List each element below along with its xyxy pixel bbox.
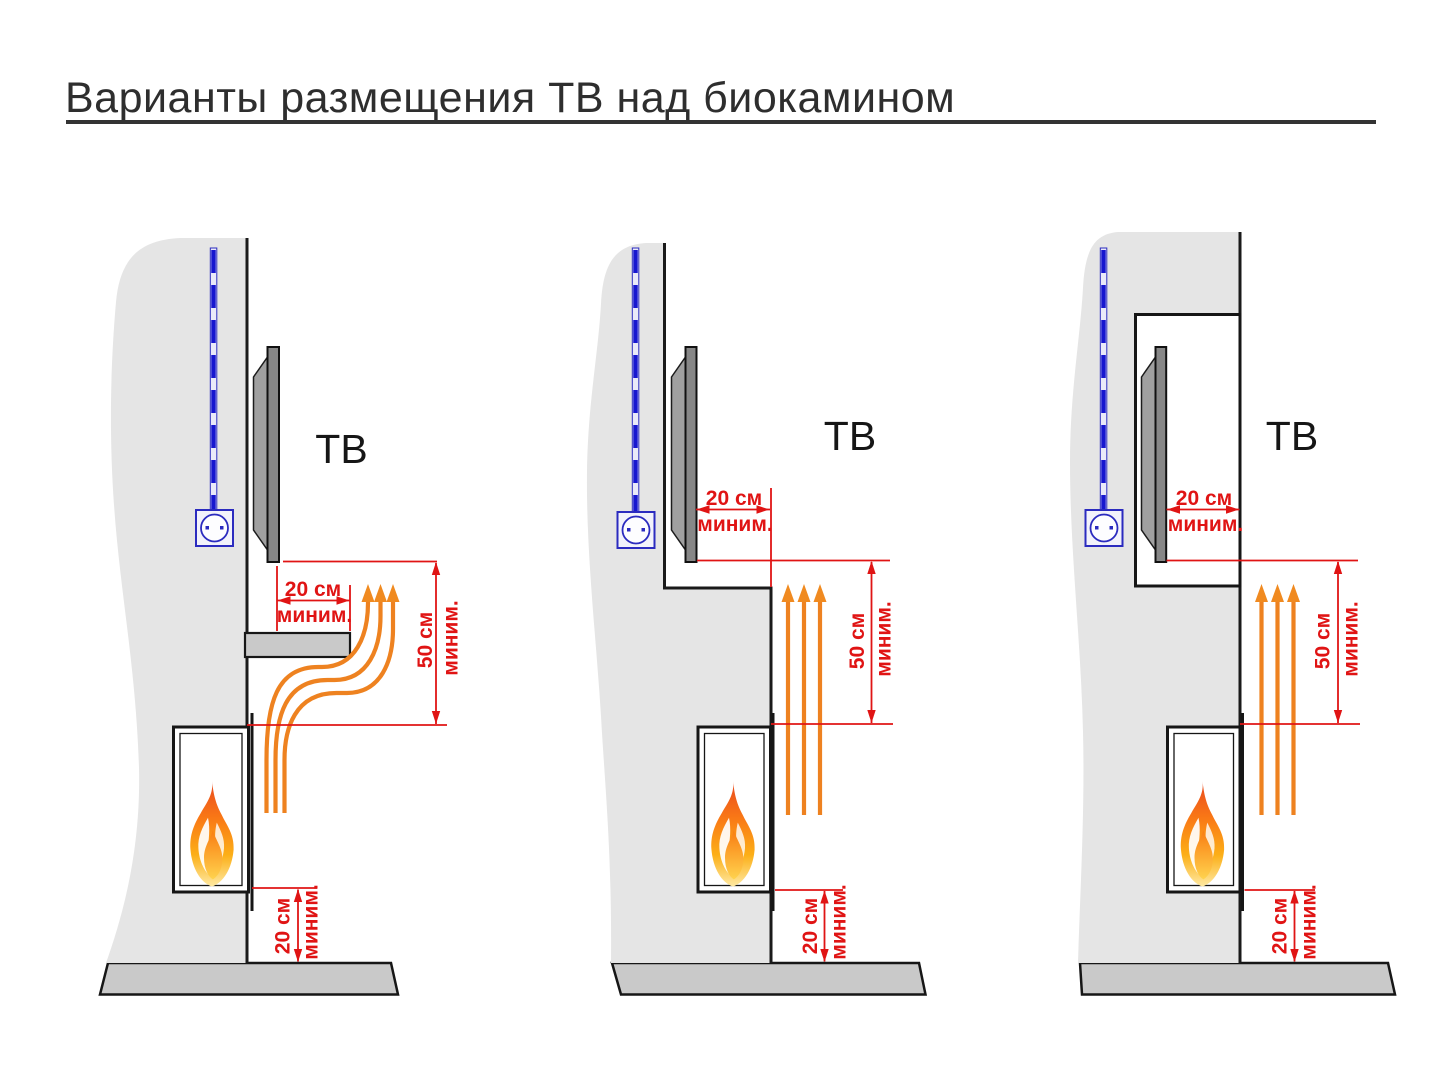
tv-body xyxy=(686,347,697,562)
fireplace xyxy=(1168,713,1243,911)
tv-screen xyxy=(254,357,268,550)
tv-label: ТВ xyxy=(1266,413,1318,459)
dim-arrowhead xyxy=(867,710,875,723)
above-clearance-qualifier: миним. xyxy=(873,601,896,676)
floor-clearance-dimension: 20 см миним. xyxy=(1245,884,1321,962)
tv-label: ТВ xyxy=(315,426,367,472)
tv-screen xyxy=(1142,357,1156,550)
floor-clearance-value: 20 см xyxy=(1269,898,1292,954)
front-clearance-value: 20 см xyxy=(1176,487,1232,510)
tv-panel xyxy=(1142,347,1167,562)
tv-body xyxy=(1156,347,1167,562)
tv-panel xyxy=(672,347,697,562)
above-clearance-value: 50 см xyxy=(846,613,869,669)
floor-clearance-qualifier: миним. xyxy=(1298,884,1321,959)
socket-pin xyxy=(627,528,631,532)
socket-pin xyxy=(1110,526,1114,530)
floor xyxy=(100,963,398,995)
heat-arrows xyxy=(1255,584,1300,815)
heat-arrowhead xyxy=(814,584,827,602)
diagram-1: ТВ 20 см миним. xyxy=(100,238,463,995)
front-clearance-qualifier: миним. xyxy=(697,513,772,536)
tv-screen xyxy=(672,357,686,550)
placement-diagrams: ТВ 20 см миним. xyxy=(0,0,1440,1080)
above-clearance-value: 50 см xyxy=(1312,613,1335,669)
front-clearance-dimension: 20 см миним. xyxy=(696,487,773,587)
floor xyxy=(1080,963,1395,995)
front-clearance-dimension: 20 см миним. xyxy=(277,566,352,631)
tv-body xyxy=(268,347,280,562)
socket-circle xyxy=(201,515,228,542)
heat-arrowhead xyxy=(782,584,795,602)
socket-pin xyxy=(206,526,210,530)
floor-clearance-qualifier: миним. xyxy=(300,884,323,959)
front-clearance-value: 20 см xyxy=(285,578,341,601)
heat-arrowhead xyxy=(374,584,387,602)
heat-arrowhead xyxy=(1271,584,1284,602)
diagram-page: Варианты размещения ТВ над биокамином xyxy=(0,0,1440,1080)
heat-arrowhead xyxy=(798,584,811,602)
floor-clearance-dimension: 20 см миним. xyxy=(252,884,323,962)
diagram-2: ТВ 20 см миним. xyxy=(587,243,926,995)
socket-circle xyxy=(623,517,650,544)
floor-clearance-qualifier: миним. xyxy=(828,884,851,959)
socket-pin xyxy=(220,526,224,530)
above-clearance-qualifier: миним. xyxy=(440,600,463,675)
floor-clearance-dimension: 20 см миним. xyxy=(775,884,851,962)
front-clearance-qualifier: миним. xyxy=(277,604,352,627)
socket-pin xyxy=(1095,526,1099,530)
dim-arrowhead xyxy=(867,561,875,574)
tv-label: ТВ xyxy=(824,413,876,459)
tv-panel xyxy=(254,347,280,562)
heat-arrowhead xyxy=(1287,584,1300,602)
floor-clearance-value: 20 см xyxy=(272,898,295,954)
socket-pin xyxy=(642,528,646,532)
floor-clearance-value: 20 см xyxy=(799,898,822,954)
front-clearance-qualifier: миним. xyxy=(1168,513,1243,536)
above-clearance-qualifier: миним. xyxy=(1340,601,1363,676)
dim-arrowhead xyxy=(1334,710,1342,723)
heat-arrowhead xyxy=(362,584,375,602)
above-clearance-value: 50 см xyxy=(414,612,437,668)
socket-circle xyxy=(1091,515,1118,542)
dim-arrowhead xyxy=(432,711,440,724)
heat-arrowhead xyxy=(387,584,400,602)
heat-arrowhead xyxy=(1255,584,1268,602)
floor xyxy=(612,963,926,995)
dim-arrowhead xyxy=(1334,561,1342,574)
fireplace xyxy=(698,713,773,911)
heat-arrows xyxy=(782,584,827,815)
shelf xyxy=(245,633,350,657)
diagram-3: ТВ 20 см миним. xyxy=(1070,232,1395,995)
dim-arrowhead xyxy=(432,562,440,575)
front-clearance-value: 20 см xyxy=(706,487,762,510)
fireplace xyxy=(174,713,253,911)
